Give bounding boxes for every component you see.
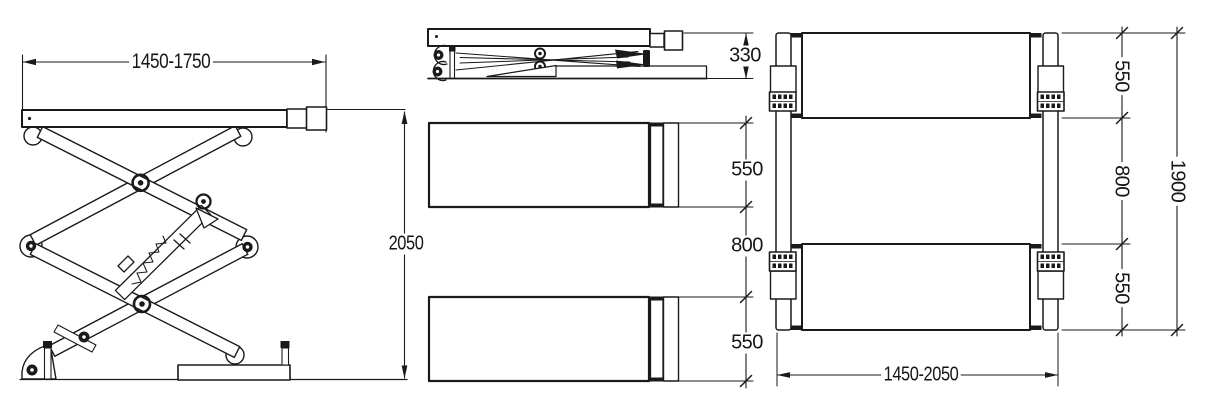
dim-plan-length-range-label: 1450-2050 [881,365,961,386]
platform-front [802,33,1030,118]
platform-front [429,123,649,207]
ramp-section [664,297,679,381]
base-step [556,66,707,78]
collapsed-view-drawing [428,29,753,81]
platform [22,110,287,127]
platform-end-block [307,107,327,130]
dim-plan-overall-width-label: 1900 [1167,157,1188,206]
safety-lock [1038,252,1065,271]
dim-raised-height-label: 2050 [386,234,426,255]
cylinder-tab [118,256,134,272]
dim-plan-550-front-label: 550 [1111,57,1132,95]
platform-rear [802,244,1030,330]
side-view-extended-drawing [20,55,407,380]
dim-top-view-550-rear-label: 550 [728,333,766,354]
ramp-flap [651,125,664,206]
safety-lock [1038,92,1065,111]
top-view-drawing [429,116,753,388]
dim-collapsed-height-label: 330 [726,46,764,67]
base-plate [178,365,290,380]
platform-end-block [650,34,664,48]
platform-rear [429,297,649,381]
platform-end-block [665,31,683,50]
platform-end-block [287,109,307,128]
drive-ramp [487,66,556,77]
dim-platform-length-label: 1450-1750 [129,51,213,73]
dim-top-view-550-front-label: 550 [728,160,766,181]
ramp-section [664,123,679,207]
safety-lock [770,252,797,271]
ramp-flap [651,299,664,380]
dim-plan-800-label: 800 [1111,162,1132,200]
technical-drawing-canvas: 1450-1750 2050 330 550 800 550 550 800 5… [0,0,1210,412]
dim-plan-550-rear-label: 550 [1111,269,1132,307]
dim-top-view-800-label: 800 [728,236,766,257]
scissor-elbows [20,127,258,372]
scissor-arms [30,126,248,358]
safety-lock [770,92,797,111]
platform [428,29,650,46]
